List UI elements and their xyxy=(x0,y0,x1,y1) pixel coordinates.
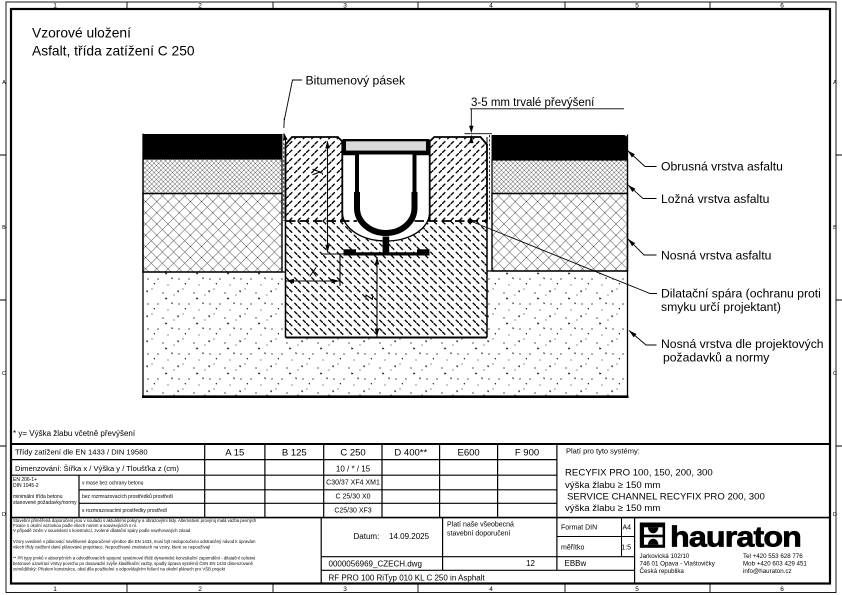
svg-text:Dimenzování: Šířka x / Výška: Dimenzování: Šířka x / Výška y / Tloušťk… xyxy=(15,464,179,473)
svg-text:s rozmrazovacími prostředky pr: s rozmrazovacími prostředky prostředí xyxy=(82,508,168,514)
svg-text:D: D xyxy=(833,512,837,518)
svg-text:Datum:: Datum: xyxy=(354,532,380,541)
svg-text:Asfalt, třída zatížení C 250: Asfalt, třída zatížení C 250 xyxy=(32,44,195,59)
svg-text:y: y xyxy=(308,168,323,175)
svg-text:v mase bez ochrany betonu: v mase bez ochrany betonu xyxy=(82,481,144,487)
svg-text:měřítko: měřítko xyxy=(561,545,584,552)
svg-text:1: 1 xyxy=(53,586,57,593)
svg-text:14.09.2025: 14.09.2025 xyxy=(389,532,430,541)
svg-text:D: D xyxy=(2,512,6,518)
svg-text:Tel +420 553 628 776: Tel +420 553 628 776 xyxy=(743,553,803,560)
svg-text:3: 3 xyxy=(343,586,347,593)
svg-text:Vzorové uložení: Vzorové uložení xyxy=(32,26,131,41)
svg-text:SERVICE CHANNEL RECYFIX PRO 20: SERVICE CHANNEL RECYFIX PRO 200, 300 xyxy=(567,492,765,503)
svg-text:C25/30 XF3: C25/30 XF3 xyxy=(334,508,371,515)
svg-text:* y= Výška žlabu včetně převýš: * y= Výška žlabu včetně převýšení xyxy=(13,429,136,438)
svg-text:C30/37 XF4 XM1: C30/37 XF4 XM1 xyxy=(326,480,380,487)
svg-text:5: 5 xyxy=(635,586,639,593)
svg-text:Česká republika: Česká republika xyxy=(640,568,685,575)
svg-text:F 900: F 900 xyxy=(515,448,539,459)
svg-text:výška žlabu ≥ 150 mm: výška žlabu ≥ 150 mm xyxy=(565,503,660,514)
svg-text:všech třídy zatížení dané plán: všech třídy zatížení dané plánované proj… xyxy=(13,545,211,550)
svg-text:A4: A4 xyxy=(622,525,631,532)
svg-text:2: 2 xyxy=(198,586,202,593)
svg-text:6: 6 xyxy=(780,3,784,10)
svg-text:Třídy zatížení dle EN 1433 / D: Třídy zatížení dle EN 1433 / DIN 19580 xyxy=(15,448,148,457)
svg-text:výška žlabu ≥ 150 mm: výška žlabu ≥ 150 mm xyxy=(565,480,660,491)
svg-text:RF PRO 100 RiTyp 010 KL C 250: RF PRO 100 RiTyp 010 KL C 250 in Asphalt xyxy=(329,574,486,583)
svg-text:Jarkovická 102/10: Jarkovická 102/10 xyxy=(640,553,690,560)
svg-text:Platí naše všeobecná: Platí naše všeobecná xyxy=(447,522,514,529)
svg-text:požadavků a normy: požadavků a normy xyxy=(663,350,770,364)
svg-text:Format DIN: Format DIN xyxy=(561,525,597,532)
svg-text:B: B xyxy=(2,225,6,231)
svg-text:hauraton: hauraton xyxy=(670,522,801,554)
svg-text:C: C xyxy=(2,371,6,377)
svg-text:B: B xyxy=(833,225,837,231)
svg-text:Bitumenový pásek: Bitumenový pásek xyxy=(306,74,406,88)
svg-text:1: 1 xyxy=(53,3,57,10)
svg-text:3: 3 xyxy=(343,3,347,10)
svg-text:Dilatační spára (ochranu proti: Dilatační spára (ochranu proti xyxy=(661,287,821,301)
svg-text:Ložná vrstva asfaltu: Ložná vrstva asfaltu xyxy=(661,192,769,206)
svg-text:3-5 mm trvalé převýšení: 3-5 mm trvalé převýšení xyxy=(471,97,595,109)
svg-text:E600: E600 xyxy=(458,448,480,459)
svg-text:Vzory uvedené v plánovací navš: Vzory uvedené v plánovací navštívené dop… xyxy=(13,539,256,544)
svg-text:Nosná vrstva dle projektových: Nosná vrstva dle projektových xyxy=(661,337,824,351)
svg-text:1:5: 1:5 xyxy=(621,545,631,552)
svg-text:Mob +420 603 429 451: Mob +420 603 429 451 xyxy=(743,561,807,568)
svg-text:EBBw: EBBw xyxy=(565,559,587,568)
svg-text:D 400**: D 400** xyxy=(394,448,427,459)
svg-text:10 / * / 15: 10 / * / 15 xyxy=(336,465,371,474)
svg-text:Nosná vrstva asfaltu: Nosná vrstva asfaltu xyxy=(661,249,771,263)
svg-text:smyku určí projektant): smyku určí projektant) xyxy=(661,300,781,314)
svg-text:B 125: B 125 xyxy=(282,448,307,459)
svg-text:RECYFIX PRO 100, 150, 200, 300: RECYFIX PRO 100, 150, 200, 300 xyxy=(565,468,713,479)
svg-text:A: A xyxy=(2,80,6,86)
svg-text:12: 12 xyxy=(526,559,535,568)
svg-text:746 01 Opava - Vlaštovičky: 746 01 Opava - Vlaštovičky xyxy=(640,561,716,568)
svg-text:bez rozmrazovacích prostředků: bez rozmrazovacích prostředků prostředí xyxy=(82,493,173,500)
svg-text:DIN 1045-2: DIN 1045-2 xyxy=(13,483,39,489)
svg-text:0000056969_CZECH.dwg: 0000056969_CZECH.dwg xyxy=(329,560,422,569)
svg-text:Obrusná vrstva asfaltu: Obrusná vrstva asfaltu xyxy=(661,160,783,174)
svg-text:C 25/30 X0: C 25/30 X0 xyxy=(335,494,370,501)
svg-text:stavební doporučení: stavební doporučení xyxy=(447,531,510,538)
svg-text:4: 4 xyxy=(489,586,493,593)
svg-text:betonové uzavírací vrstvy povr: betonové uzavírací vrstvy povrchu po dos… xyxy=(13,561,254,566)
svg-text:z: z xyxy=(361,293,376,300)
svg-text:V případě změn v souvislosti s: V případě změn v souvislosti s konstrukc… xyxy=(13,528,191,533)
svg-text:** Při typy prvků v absorpčníc: ** Při typy prvků v absorpčních a odvodň… xyxy=(13,556,256,561)
svg-text:4: 4 xyxy=(489,3,493,10)
svg-text:C: C xyxy=(833,371,837,377)
svg-text:Platí pro tyto systémy:: Platí pro tyto systémy: xyxy=(566,447,640,456)
svg-text:2: 2 xyxy=(198,3,202,10)
svg-text:A: A xyxy=(833,80,837,86)
svg-text:6: 6 xyxy=(780,586,784,593)
svg-text:A 15: A 15 xyxy=(225,448,244,459)
svg-text:X: X xyxy=(309,266,318,280)
svg-text:stanovené požadavky/normy: stanovené požadavky/normy xyxy=(13,500,77,506)
svg-text:C 250: C 250 xyxy=(340,448,365,459)
svg-text:info@hauraton.cz: info@hauraton.cz xyxy=(743,568,792,575)
svg-text:5: 5 xyxy=(635,3,639,10)
svg-text:zemědělský: Předem konstrukce,: zemědělský: Předem konstrukce, obal díla… xyxy=(13,567,226,572)
